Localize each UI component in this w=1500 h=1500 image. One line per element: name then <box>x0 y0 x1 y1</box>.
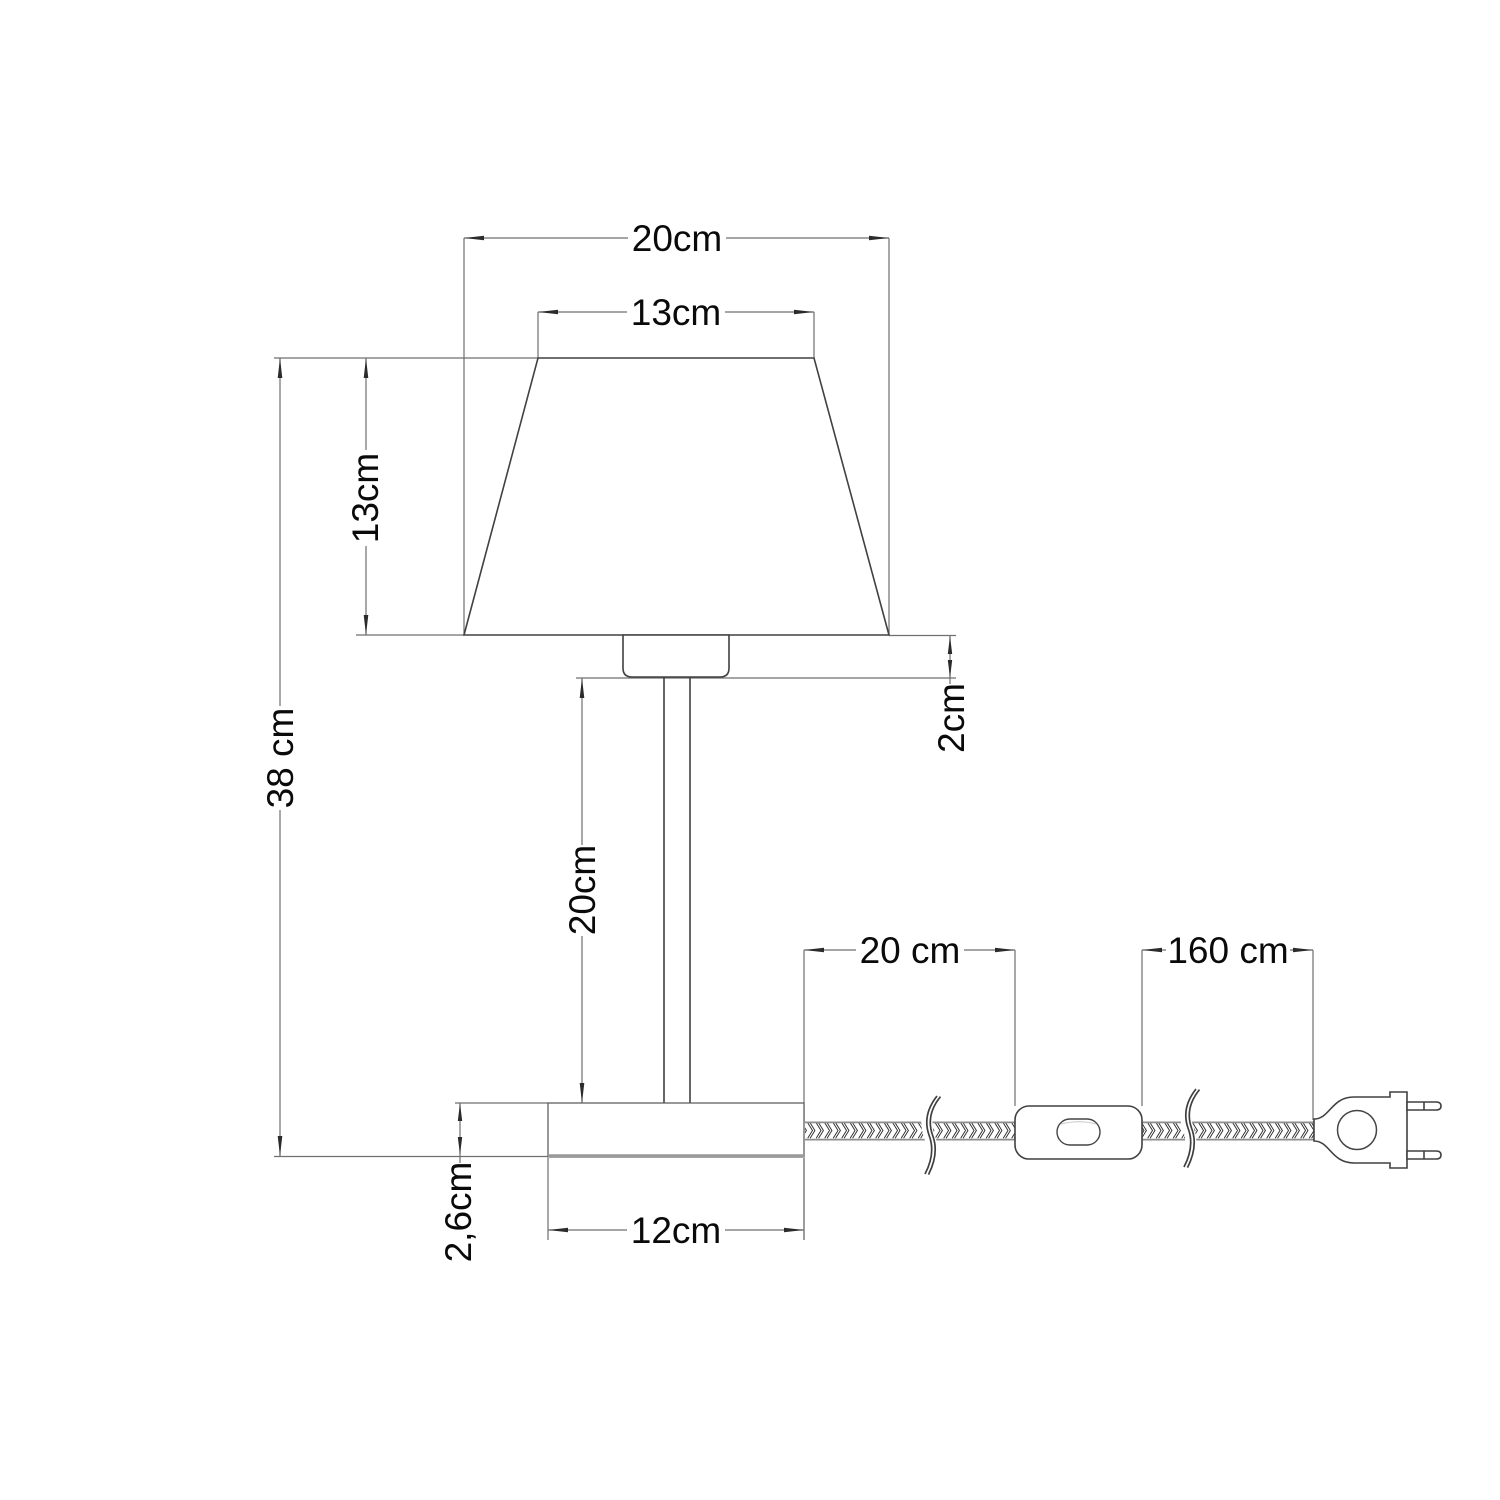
svg-text:20cm: 20cm <box>632 218 722 259</box>
svg-text:20 cm: 20 cm <box>860 930 961 971</box>
svg-text:2cm: 2cm <box>931 683 972 753</box>
svg-text:2,6cm: 2,6cm <box>438 1162 479 1263</box>
svg-text:13cm: 13cm <box>345 453 386 543</box>
svg-text:38 cm: 38 cm <box>260 708 301 809</box>
svg-text:13cm: 13cm <box>631 292 721 333</box>
svg-text:160 cm: 160 cm <box>1167 930 1288 971</box>
svg-text:20cm: 20cm <box>562 845 603 935</box>
svg-text:12cm: 12cm <box>631 1210 721 1251</box>
